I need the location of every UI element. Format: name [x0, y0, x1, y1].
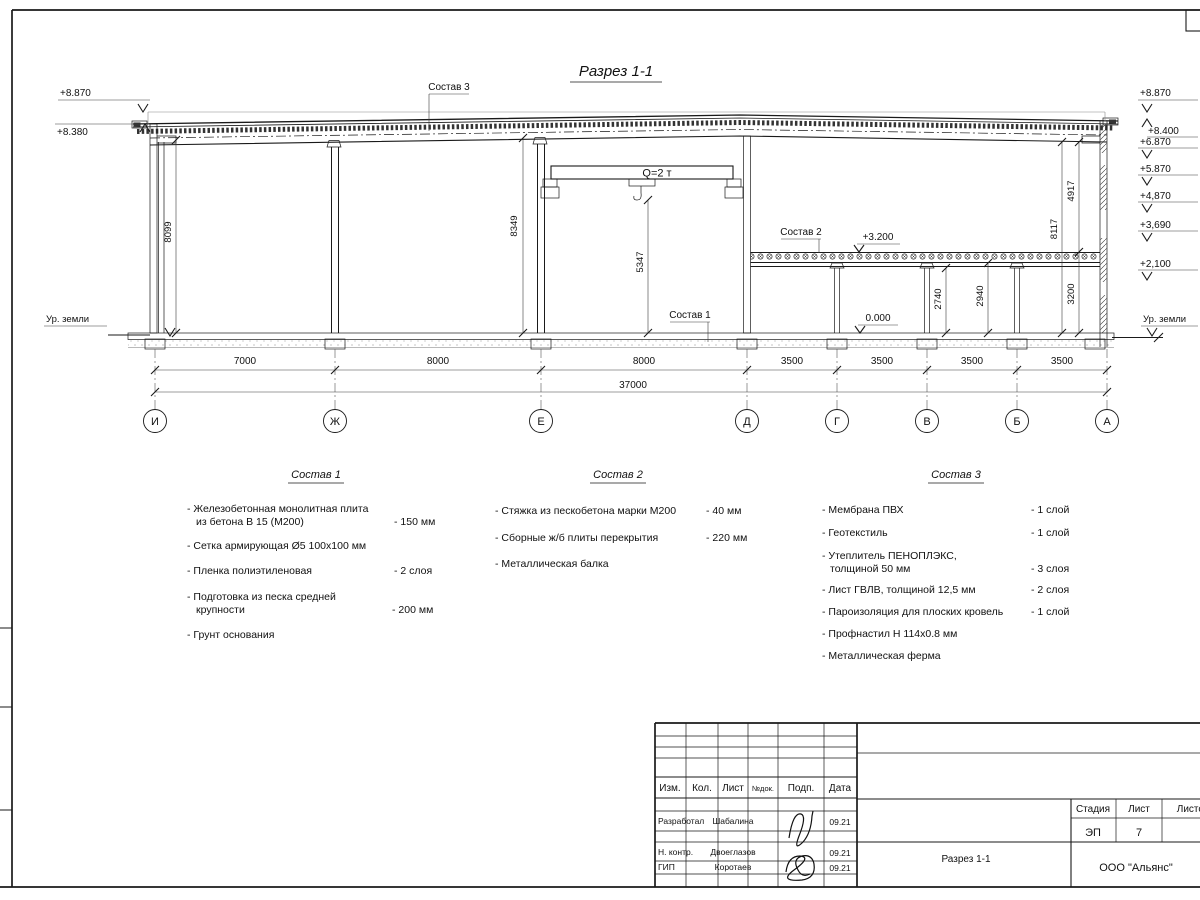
span-dim: 8000 — [427, 356, 450, 367]
dim-3200: 3200 — [1066, 283, 1077, 304]
dimension-chain: 7000 8000 8000 3500 3500 3500 3500 37000… — [144, 349, 1119, 433]
roof-assembly — [132, 112, 1118, 145]
axis-bubbles: И Ж Е Д Г В Б А — [144, 410, 1119, 433]
role-developer: Разработал — [658, 816, 704, 826]
elev-right-5870: +5.870 — [1140, 164, 1171, 175]
list-item: - Стяжка из пескобетона марки М200 — [495, 505, 676, 517]
col-data: Дата — [829, 783, 852, 794]
wall-axis-i — [150, 124, 157, 333]
elev-left-eaves: +8.380 — [57, 127, 88, 138]
ground-label-right: Ур. земли — [1143, 314, 1186, 325]
axis-label: Е — [537, 416, 544, 428]
col-izm: Изм. — [659, 783, 680, 794]
span-dim: 3500 — [871, 356, 894, 367]
list-item: толщиной 50 мм — [830, 563, 910, 575]
list-item-value: - 200 мм — [392, 604, 433, 616]
list1-title: Состав 1 — [291, 469, 341, 481]
vertical-dimensions: 8099 8349 5347 2740 2940 3200 4917 8117 — [163, 134, 1083, 337]
dim-2940: 2940 — [975, 285, 986, 306]
column-capital-zh — [327, 141, 341, 148]
list-item: - Утеплитель ПЕНОПЛЭКС, — [822, 550, 957, 562]
dim-8349: 8349 — [509, 215, 520, 236]
list-item-value: - 1 слой — [1031, 527, 1070, 539]
dim-4917: 4917 — [1066, 180, 1077, 201]
list-item: крупности — [196, 604, 245, 616]
column-axis-e — [538, 144, 545, 333]
composition-list-1: Состав 1 - Железобетонная монолитная пли… — [187, 469, 435, 641]
drawing-title: Разрез 1-1 — [579, 63, 653, 80]
col-kol: Кол. — [692, 783, 712, 794]
crane-hook — [634, 186, 641, 200]
ref-sostav1: Состав 1 — [669, 310, 711, 321]
sheet-label: Лист — [1128, 804, 1150, 815]
crane-corbels — [541, 179, 743, 198]
list-item-value: - 2 слоя — [394, 565, 432, 577]
list-item: из бетона В 15 (М200) — [196, 516, 304, 528]
mezzanine-slab — [751, 253, 1101, 334]
stage-label: Стадия — [1076, 804, 1110, 815]
list-item: - Профнастил Н 114х0.8 мм — [822, 628, 957, 640]
structure — [150, 121, 1107, 347]
frame-corner-cell — [1186, 10, 1200, 31]
doc-name: Разрез 1-1 — [941, 854, 991, 865]
title-block: Изм. Кол. Лист №док. Подп. Дата Разработ… — [655, 723, 1200, 887]
list3-title: Состав 3 — [931, 469, 982, 481]
col-podp: Подп. — [788, 783, 815, 794]
list-item: - Лист ГВЛВ, толщиной 12,5 мм — [822, 584, 976, 596]
interior-elevations: +3.200 0.000 — [854, 232, 900, 333]
crane-beam: Q=2 т — [541, 166, 743, 200]
composition-list-2: Состав 2 - Стяжка из пескобетона марки М… — [495, 469, 747, 570]
name-ncontrol: Двоеглазов — [710, 847, 756, 857]
total-dim: 37000 — [619, 380, 647, 391]
axis-label: И — [151, 416, 159, 428]
stage-value: ЭП — [1085, 827, 1101, 839]
list-item-value: - 2 слоя — [1031, 584, 1069, 596]
list-item-value: - 220 мм — [706, 532, 747, 544]
dim-8099: 8099 — [163, 221, 174, 242]
span-dim: 3500 — [1051, 356, 1074, 367]
list-item-value: - 40 мм — [706, 505, 741, 517]
span-dim: 7000 — [234, 356, 257, 367]
axis-label: Г — [834, 416, 840, 428]
span-dim: 8000 — [633, 356, 656, 367]
date-ncontrol: 09.21 — [829, 848, 851, 858]
list-item: - Пленка полиэтиленовая — [187, 565, 312, 577]
list-item: - Мембрана ПВХ — [822, 504, 904, 516]
ref-sostav3: Состав 3 — [428, 82, 470, 93]
role-ncontrol: Н. контр. — [658, 847, 693, 857]
name-gip: Коротаев — [715, 862, 752, 872]
elevation-marks-right: +8.870 +8.400 +6.870 +5.870 +4,870 +3,69… — [1138, 88, 1198, 336]
axis-label: Д — [743, 416, 751, 428]
date-gip: 09.21 — [829, 863, 851, 873]
elev-right-2100: +2,100 — [1140, 259, 1171, 270]
list-item: - Железобетонная монолитная плита — [187, 503, 369, 515]
name-developer: Шабалина — [712, 816, 753, 826]
elev-floor-zero: 0.000 — [865, 313, 890, 324]
axis-label: Б — [1013, 416, 1020, 428]
dim-5347: 5347 — [635, 251, 646, 272]
col-ndok: №док. — [752, 784, 774, 793]
composition-list-3: Состав 3 - Мембрана ПВХ - 1 слой - Геоте… — [822, 469, 1070, 662]
list-item: - Сетка армирующая Ø5 100х100 мм — [187, 540, 366, 552]
column-axis-zh — [332, 147, 339, 333]
list-item-value: - 1 слой — [1031, 504, 1070, 516]
list-item: - Металлическая ферма — [822, 650, 941, 662]
elev-right-top: +8.870 — [1140, 88, 1171, 99]
list-item-value: - 150 мм — [394, 516, 435, 528]
span-dim: 3500 — [961, 356, 984, 367]
floor-slab — [108, 333, 1163, 349]
elev-right-3690: +3,690 — [1140, 220, 1171, 231]
list-item: - Сборные ж/б плиты перекрытия — [495, 532, 658, 544]
list-item: - Подготовка из песка средней — [187, 591, 336, 603]
mezzanine-columns — [830, 263, 1024, 333]
col-list: Лист — [722, 783, 744, 794]
section-drawing-sheet: Разрез 1-1 Q=2 т — [0, 0, 1200, 900]
list-item: - Геотекстиль — [822, 527, 888, 539]
dim-2740: 2740 — [933, 288, 944, 309]
frame-fold-marks — [0, 628, 12, 810]
axis-label: Ж — [330, 416, 340, 428]
elev-left-top: +8.870 — [60, 88, 91, 99]
ground-level-lines — [108, 335, 1163, 338]
list-item: - Пароизоляция для плоских кровель — [822, 606, 1004, 618]
list-item: - Металлическая балка — [495, 558, 609, 570]
elevation-marks-left: +8.870 +8.380 Ур. земли — [44, 88, 175, 336]
list-item: - Грунт основания — [187, 629, 274, 641]
elev-right-8400: +8.400 — [1148, 126, 1179, 137]
axis-label: А — [1103, 416, 1111, 428]
company-name: ООО "Альянс" — [1099, 862, 1173, 874]
sheets-label: Листов — [1177, 804, 1200, 815]
signature-developer — [789, 811, 813, 846]
elev-right-4870: +4,870 — [1140, 191, 1171, 202]
sheet-frame — [0, 10, 1200, 887]
role-gip: ГИП — [658, 862, 675, 872]
sheet-number: 7 — [1136, 827, 1142, 839]
list-item-value: - 1 слой — [1031, 606, 1070, 618]
ground-label-left: Ур. земли — [46, 314, 89, 325]
wall-axis-d — [744, 136, 751, 333]
wall-axis-a — [1100, 121, 1107, 347]
roof-decking-hatch — [137, 123, 1114, 132]
ref-sostav2: Состав 2 — [780, 227, 822, 238]
dim-8117: 8117 — [1049, 219, 1060, 239]
crane-capacity-label: Q=2 т — [642, 168, 671, 180]
elev-right-6870: +6.870 — [1140, 137, 1171, 148]
axis-label: В — [923, 416, 930, 428]
crane-trolley — [629, 179, 655, 186]
signature-gip — [786, 856, 814, 881]
elev-mezzanine: +3.200 — [863, 232, 894, 243]
span-dim: 3500 — [781, 356, 804, 367]
date-developer: 09.21 — [829, 817, 851, 827]
list-item-value: - 3 слоя — [1031, 563, 1069, 575]
list2-title: Состав 2 — [593, 469, 643, 481]
